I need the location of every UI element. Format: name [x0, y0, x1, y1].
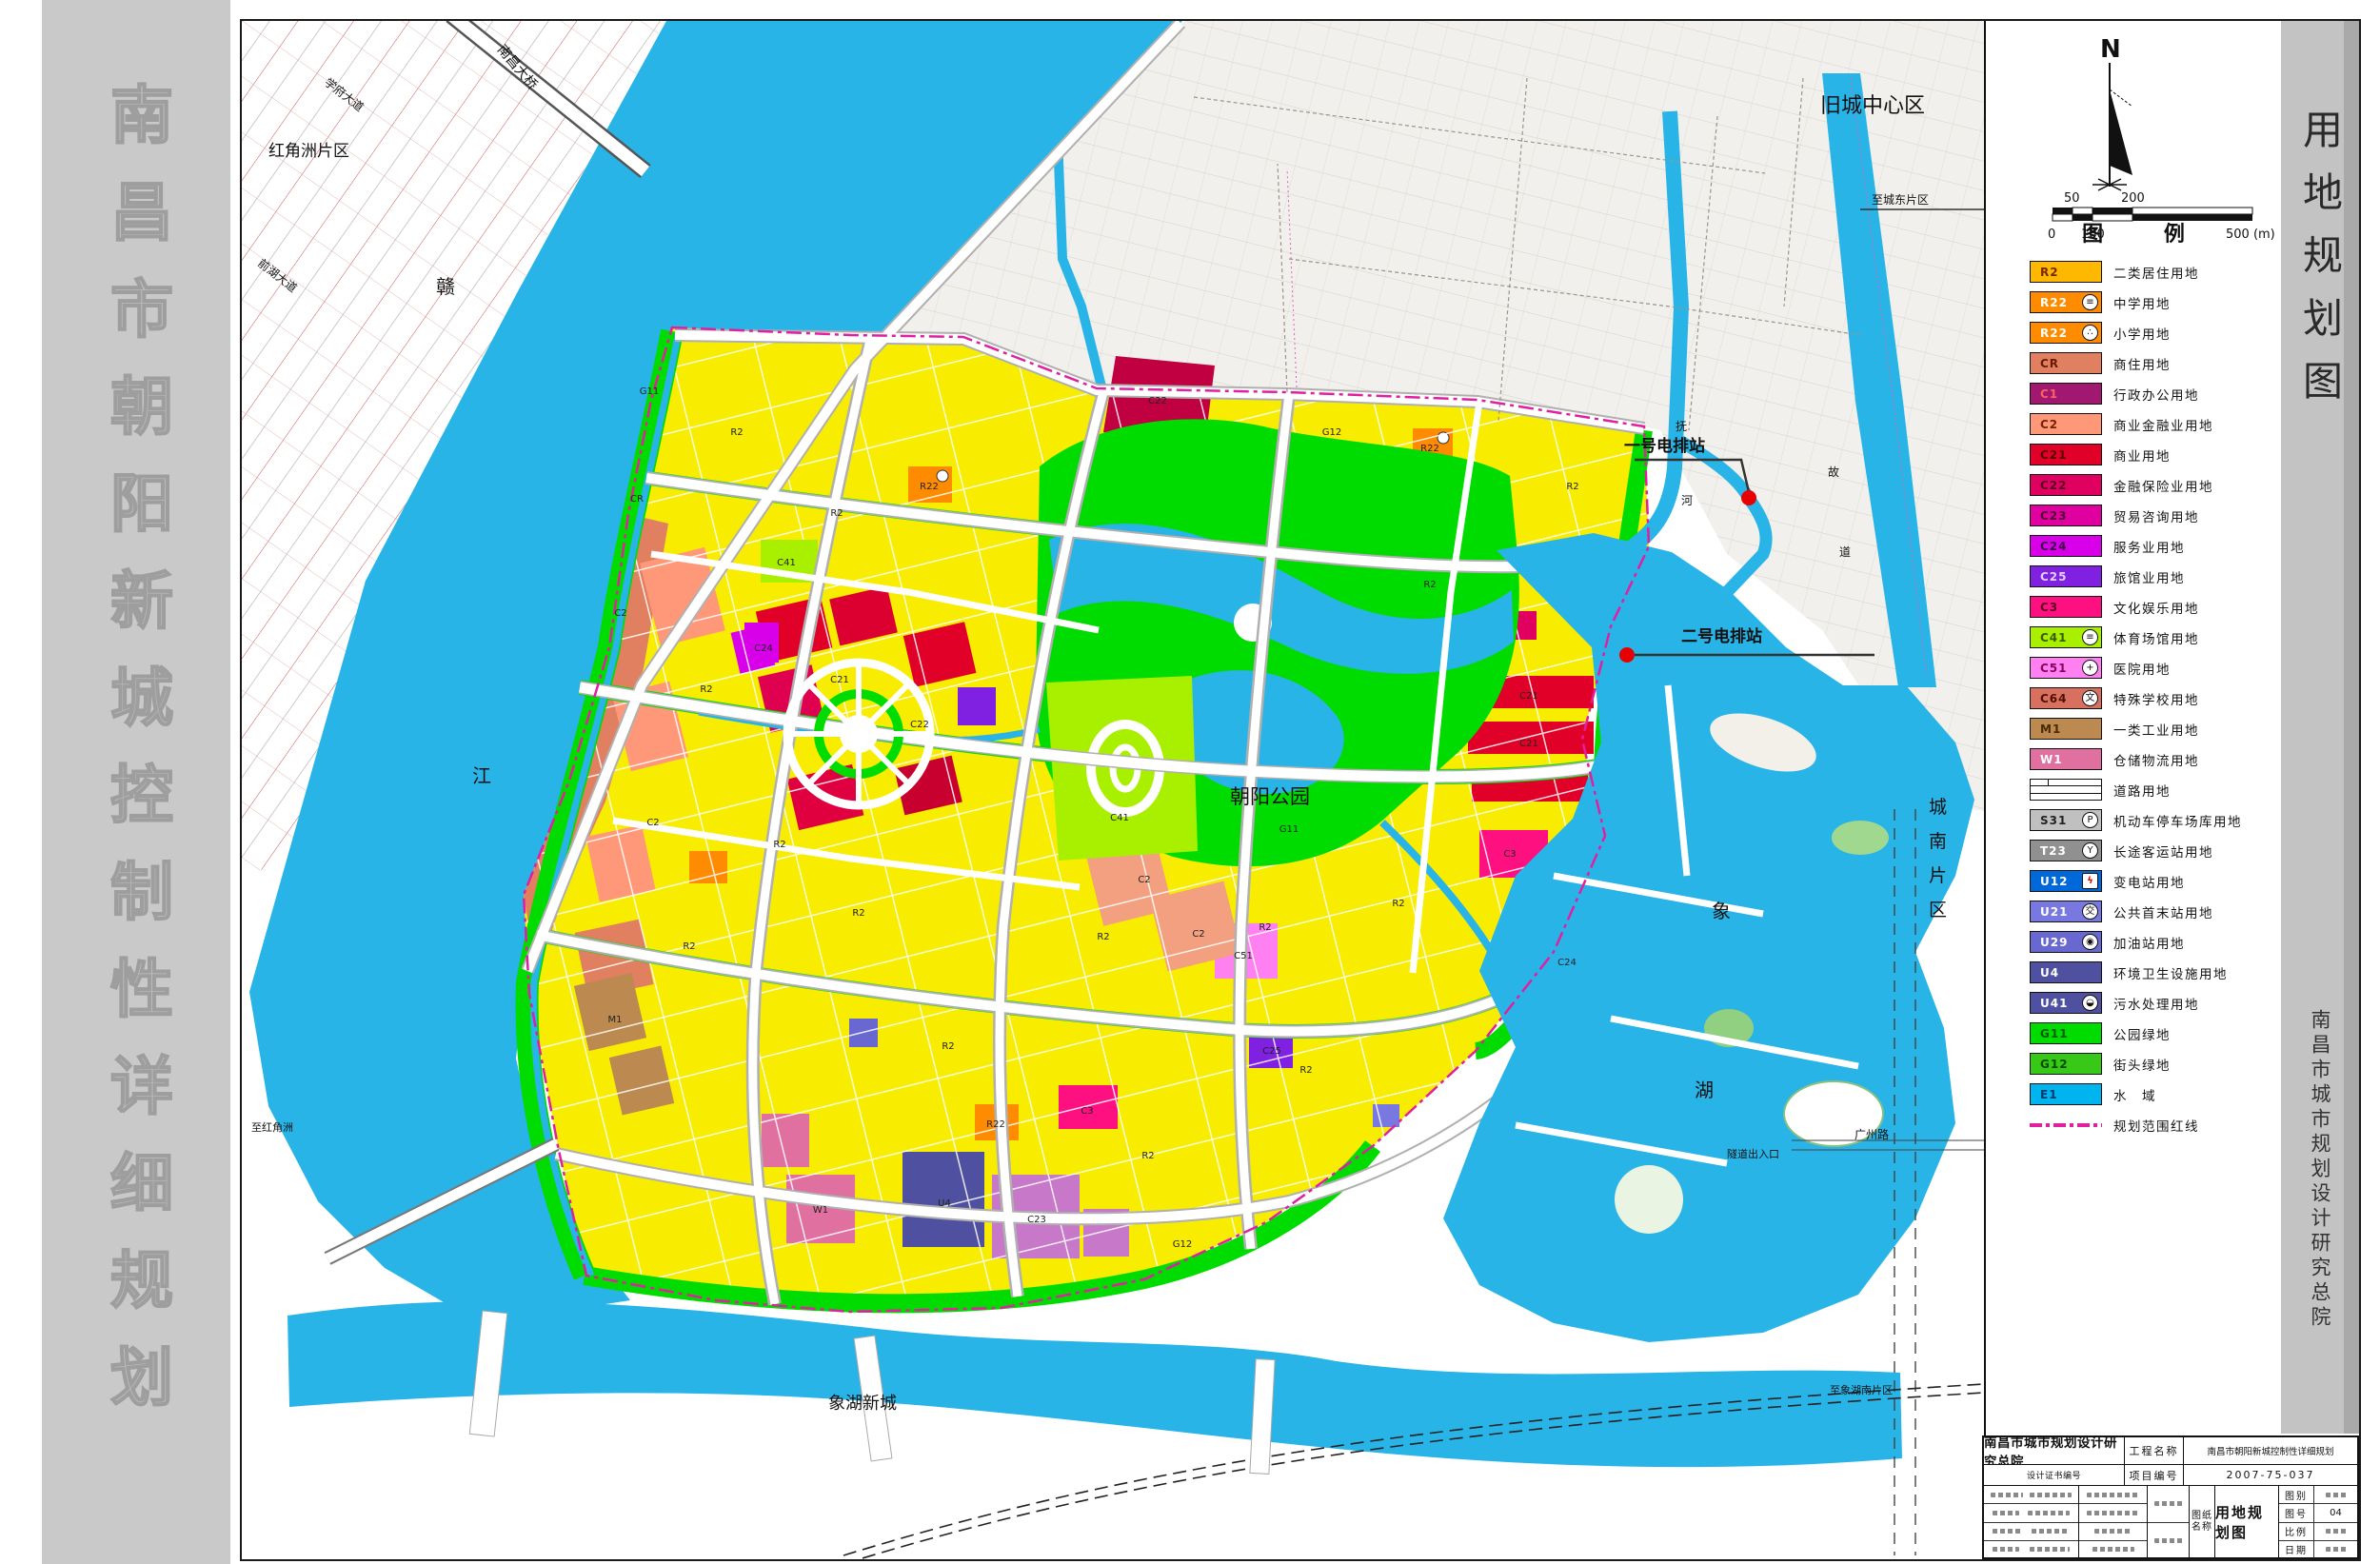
legend-swatch: G11 — [2030, 1022, 2102, 1044]
parking-icon: P — [2082, 812, 2098, 828]
legend-code: R22 — [2040, 296, 2068, 309]
label-old-city: 旧城中心区 — [1820, 94, 1925, 118]
project-name-value: 南昌市朝阳新城控制性详细规划 — [2184, 1437, 2357, 1464]
legend-swatch: U4 — [2030, 961, 2102, 983]
legend-row-C21: C21商业用地 — [2030, 444, 2273, 465]
label-gan-river-1: 赣 — [436, 275, 455, 298]
sheet-name-label: 图纸名称 — [2190, 1486, 2215, 1558]
zone-code-label: C22 — [1148, 396, 1167, 406]
legend-label: 服务业用地 — [2113, 537, 2185, 556]
legend-code: C1 — [2040, 387, 2058, 401]
legend-code: C64 — [2040, 692, 2068, 705]
legend-swatch: C2 — [2030, 413, 2102, 435]
legend-code: C23 — [2040, 509, 2068, 523]
legend-label: 公共首末站用地 — [2113, 902, 2213, 921]
zone-code-label: C2 — [1192, 929, 1204, 940]
label-fuhe-2: 河 — [1681, 494, 1693, 507]
legend-swatch: C51+ — [2030, 657, 2102, 679]
legend-code: C2 — [2040, 418, 2058, 431]
label-tunnel-entrance: 隧道出入口 — [1727, 1147, 1779, 1160]
legend-row-E1: E1水 域 — [2030, 1083, 2273, 1105]
legend-swatch: E1 — [2030, 1083, 2102, 1105]
legend-code: U4 — [2040, 966, 2059, 980]
zone-code-label: CR — [630, 494, 644, 505]
svg-text:50: 50 — [2064, 191, 2080, 206]
left-title-strip: 南昌市朝阳新城控制性详细规划 — [42, 0, 230, 1564]
sewage-treatment-icon: ◒ — [2082, 995, 2098, 1011]
legend-row-C24: C24服务业用地 — [2030, 535, 2273, 557]
zone-code-label: C3 — [1503, 849, 1516, 860]
label-xianghu-xincheng: 象湖新城 — [828, 1394, 897, 1414]
legend-label: 仓储物流用地 — [2113, 750, 2199, 769]
legend-row-C25: C25旅馆业用地 — [2030, 565, 2273, 587]
legend-row-C1: C1行政办公用地 — [2030, 383, 2273, 405]
sheet-name-value: 用地规划图 — [2215, 1486, 2279, 1558]
zone-code-label: C3 — [1081, 1106, 1093, 1117]
zone-code-label: R2 — [1097, 932, 1109, 942]
label-to-chengdong: 至城东片区 — [1872, 193, 1929, 207]
legend-swatch: U21交 — [2030, 901, 2102, 922]
legend-swatch: G12 — [2030, 1053, 2102, 1075]
legend-label: 环境卫生设施用地 — [2113, 963, 2228, 982]
legend-row-R22: R22∴小学用地 — [2030, 322, 2273, 344]
legend-code: C41 — [2040, 631, 2068, 644]
legend-row-U4: U4环境卫生设施用地 — [2030, 961, 2273, 983]
project-name-label: 工程名称 — [2125, 1437, 2184, 1464]
legend-label: 水 域 — [2113, 1085, 2156, 1104]
legend-label: 贸易咨询用地 — [2113, 506, 2199, 525]
legend-label: 文化娱乐用地 — [2113, 598, 2199, 617]
project-no-value: 2007-75-037 — [2184, 1465, 2357, 1485]
legend-code: CR — [2040, 357, 2059, 370]
legend-swatch: S31P — [2030, 809, 2102, 831]
zone-code-label: R22 — [920, 482, 939, 492]
zone-code-label: G11 — [640, 386, 659, 397]
legend-swatch: R22≡ — [2030, 291, 2102, 313]
legend-swatch — [2030, 779, 2102, 801]
zone-code-label: M1 — [608, 1015, 623, 1025]
hospital-cross-icon: + — [2082, 660, 2098, 676]
zone-code-label: W1 — [813, 1205, 828, 1216]
legend-swatch: C24 — [2030, 535, 2102, 557]
zone-code-label: C21 — [1519, 691, 1538, 702]
legend-row-U29: U29◉加油站用地 — [2030, 931, 2273, 953]
cert-label: 设计证书编号 — [1984, 1465, 2125, 1485]
zone-code-label: C21 — [1519, 739, 1538, 749]
legend-code: S31 — [2040, 814, 2067, 827]
compass-and-scale: N 50 200 0 100 500 (m) — [1986, 27, 2283, 247]
legend-swatch: M1 — [2030, 718, 2102, 740]
zone-code-label: R22 — [1420, 444, 1439, 454]
legend-code: U12 — [2040, 875, 2068, 888]
zone-code-label: C41 — [777, 558, 796, 568]
bus-terminal-icon: Y — [2082, 842, 2098, 859]
legend-label: 规划范围红线 — [2113, 1116, 2199, 1135]
legend-label: 加油站用地 — [2113, 933, 2185, 952]
legend-label: 公园绿地 — [2113, 1024, 2171, 1043]
gas-station-icon: ◉ — [2082, 934, 2098, 950]
project-no-label: 项目编号 — [2125, 1465, 2184, 1485]
legend-code: G11 — [2040, 1027, 2069, 1040]
legend-swatch: C64文 — [2030, 687, 2102, 709]
legend-code: C3 — [2040, 601, 2058, 614]
legend-label: 金融保险业用地 — [2113, 476, 2213, 495]
legend-code: G12 — [2040, 1058, 2069, 1071]
legend-swatch: C1 — [2030, 383, 2102, 405]
zone-code-label: C25 — [1262, 1046, 1281, 1057]
legend-code: U29 — [2040, 936, 2068, 949]
label-gudao-1: 故 — [1828, 465, 1839, 479]
zone-code-label: C2 — [1138, 875, 1150, 885]
label-to-xianghunan: 至象湖南片区 — [1830, 1384, 1893, 1396]
legend-swatch: CR — [2030, 352, 2102, 374]
zone-code-label: C24 — [754, 643, 773, 654]
legend-row-C23: C23贸易咨询用地 — [2030, 505, 2273, 526]
titleblock-institute: 南昌市城市规划设计研究总院 — [1984, 1437, 2125, 1464]
label-gudao-2: 道 — [1839, 545, 1851, 559]
legend-code: C24 — [2040, 540, 2068, 553]
legend-code: C25 — [2040, 570, 2068, 584]
legend-row-C51: C51+医院用地 — [2030, 657, 2273, 679]
legend-row-G12: G12街头绿地 — [2030, 1053, 2273, 1075]
legend-label: 特殊学校用地 — [2113, 689, 2199, 708]
legend-row-U21: U21交公共首末站用地 — [2030, 901, 2273, 922]
zone-code-label: R2 — [730, 427, 743, 438]
legend-label: 行政办公用地 — [2113, 385, 2199, 404]
legend-row-W1: W1仓储物流用地 — [2030, 748, 2273, 770]
label-xianghu-2: 湖 — [1695, 1079, 1714, 1101]
civic-plaza — [787, 663, 930, 805]
legend-row-C2: C2商业金融业用地 — [2030, 413, 2273, 435]
zone-code-label: C2 — [646, 818, 659, 828]
legend-row-G11: G11公园绿地 — [2030, 1022, 2273, 1044]
legend-label: 中学用地 — [2113, 293, 2171, 312]
zone-code-label: R2 — [773, 840, 785, 850]
legend-row-CR: CR商住用地 — [2030, 352, 2273, 374]
legend-code: R22 — [2040, 327, 2068, 340]
legend-row-road: 道路用地 — [2030, 779, 2273, 801]
zone-code-label: G12 — [1322, 427, 1341, 438]
document-title-vertical: 南昌市朝阳新城控制性详细规划 — [90, 82, 182, 1441]
legend-label: 街头绿地 — [2113, 1055, 2171, 1074]
legend-label: 长途客运站用地 — [2113, 841, 2213, 861]
legend-row-C22: C22金融保险业用地 — [2030, 474, 2273, 496]
zone-code-label: R2 — [830, 508, 843, 519]
legend-code: U41 — [2040, 997, 2068, 1010]
legend-label: 小学用地 — [2113, 324, 2171, 343]
legend-swatch: W1 — [2030, 748, 2102, 770]
legend-row-R22: R22≡中学用地 — [2030, 291, 2273, 313]
zone-code-label: R22 — [986, 1119, 1005, 1130]
label-guangzhou-road: 广州路 — [1854, 1127, 1889, 1141]
legend-label: 商业金融业用地 — [2113, 415, 2213, 434]
legend-label: 商住用地 — [2113, 354, 2171, 373]
svg-text:200: 200 — [2121, 191, 2145, 206]
zone-code-label: R2 — [1423, 580, 1436, 590]
legend-rows: R2二类居住用地R22≡中学用地R22∴小学用地CR商住用地C1行政办公用地C2… — [2030, 261, 2273, 1144]
zone-code-label: G11 — [1279, 824, 1299, 835]
sheet-meta-table: 图别 图号04 比例 日期 — [2279, 1486, 2357, 1558]
label-chaoyang-park: 朝阳公园 — [1230, 785, 1310, 808]
zone-code-label: G12 — [1173, 1239, 1192, 1250]
map-svg: 红角洲片区学府大道前湖大道南昌大桥赣江旧城中心区至城东片区一号电排站二号电排站朝… — [242, 21, 1984, 1559]
zone-code-label: R2 — [683, 941, 695, 952]
zone-code-label: C21 — [830, 675, 849, 685]
legend-label: 道路用地 — [2113, 781, 2171, 800]
legend-label: 旅馆业用地 — [2113, 567, 2185, 586]
legend-row-T23: T23Y长途客运站用地 — [2030, 840, 2273, 861]
legend-row-C41: C41≡体育场馆用地 — [2030, 626, 2273, 648]
legend-label: 二类居住用地 — [2113, 263, 2199, 282]
middle-school-icon: ≡ — [2082, 294, 2098, 310]
zone-code-label: R2 — [1392, 899, 1404, 909]
legend-code: M1 — [2040, 723, 2061, 736]
zone-code-label: C22 — [910, 720, 929, 730]
zone-code-label: R2 — [852, 908, 864, 919]
legend-swatch: C41≡ — [2030, 626, 2102, 648]
signoff-column-1 — [1984, 1486, 2079, 1558]
label-gan-river-2: 江 — [472, 764, 491, 787]
legend-code: C22 — [2040, 479, 2068, 492]
legend-swatch — [2030, 1114, 2102, 1136]
stadium-icon: ≡ — [2082, 629, 2098, 645]
zone-code-label: C24 — [1557, 958, 1577, 968]
label-pump-station-1: 一号电排站 — [1624, 436, 1705, 456]
legend-swatch: C23 — [2030, 505, 2102, 526]
label-pump-station-2: 二号电排站 — [1681, 626, 1762, 646]
label-fuhe-1: 抚 — [1676, 420, 1687, 433]
legend-row-U12: U12ϟ变电站用地 — [2030, 870, 2273, 892]
legend-title: 图 例 — [1986, 217, 2281, 247]
legend-row-C64: C64文特殊学校用地 — [2030, 687, 2273, 709]
institute-vertical: 南昌市城市规划设计研究总院 — [2306, 1009, 2334, 1331]
zone-code-label: R2 — [1259, 922, 1271, 933]
signoff-column-3 — [2148, 1486, 2190, 1558]
legend-swatch: R22∴ — [2030, 322, 2102, 344]
legend-panel: N 50 200 0 100 500 (m) 图 例 R2二类居住用地R22≡中… — [1984, 21, 2281, 1559]
legend-code: W1 — [2040, 753, 2063, 766]
north-arrow-icon — [2092, 63, 2132, 190]
legend-row-C3: C3文化娱乐用地 — [2030, 596, 2273, 618]
zone-code-label: R2 — [1299, 1065, 1312, 1076]
legend-row-M1: M1一类工业用地 — [2030, 718, 2273, 740]
zone-code-label: C23 — [1027, 1215, 1046, 1225]
legend-row-S31: S31P机动车停车场库用地 — [2030, 809, 2273, 831]
zone-code-label: C2 — [614, 608, 626, 619]
label-to-hongjiaozhou: 至红角洲 — [251, 1121, 293, 1134]
sheet-title-vertical: 用地规划图 — [2291, 109, 2350, 423]
legend-label: 机动车停车场库用地 — [2113, 811, 2242, 830]
legend-swatch: C25 — [2030, 565, 2102, 587]
legend-swatch: T23Y — [2030, 840, 2102, 861]
legend-row-R2: R2二类居住用地 — [2030, 261, 2273, 283]
zone-code-label: R2 — [700, 684, 712, 695]
primary-school-icon: ∴ — [2082, 325, 2098, 341]
legend-swatch: R2 — [2030, 261, 2102, 283]
zone-code-label: C41 — [1110, 813, 1129, 823]
substation-lightning-icon: ϟ — [2082, 873, 2098, 889]
plan-sheet: 红角洲片区学府大道前湖大道南昌大桥赣江旧城中心区至城东片区一号电排站二号电排站朝… — [240, 19, 2361, 1561]
label-hongjiaozhou: 红角洲片区 — [268, 142, 349, 161]
legend-swatch: U29◉ — [2030, 931, 2102, 953]
legend-label: 体育场馆用地 — [2113, 628, 2199, 647]
legend-label: 医院用地 — [2113, 659, 2171, 678]
north-label: N — [2100, 35, 2121, 64]
label-xianghu-1: 象 — [1712, 900, 1731, 922]
legend-swatch: U41◒ — [2030, 992, 2102, 1014]
legend-row-U41: U41◒污水处理用地 — [2030, 992, 2273, 1014]
zone-code-label: U4 — [938, 1198, 951, 1209]
legend-code: T23 — [2040, 844, 2067, 858]
legend-label: 污水处理用地 — [2113, 994, 2199, 1013]
legend-swatch: C3 — [2030, 596, 2102, 618]
map-area: 红角洲片区学府大道前湖大道南昌大桥赣江旧城中心区至城东片区一号电排站二号电排站朝… — [242, 21, 1984, 1559]
legend-code: R2 — [2040, 266, 2059, 279]
legend-code: U21 — [2040, 905, 2068, 919]
right-title-strip: 用地规划图 南昌市城市规划设计研究总院 — [2281, 21, 2359, 1434]
legend-row-boundary: 规划范围红线 — [2030, 1114, 2273, 1136]
legend-swatch: C22 — [2030, 474, 2102, 496]
zone-code-label: R2 — [1141, 1151, 1154, 1161]
legend-label: 商业用地 — [2113, 445, 2171, 465]
transit-terminus-icon: 交 — [2082, 903, 2098, 920]
legend-code: C21 — [2040, 448, 2068, 462]
title-block: 南昌市城市规划设计研究总院 工程名称 南昌市朝阳新城控制性详细规划 设计证书编号… — [1982, 1435, 2359, 1559]
legend-code: E1 — [2040, 1088, 2058, 1101]
zone-code-label: R2 — [942, 1041, 954, 1052]
legend-label: 一类工业用地 — [2113, 720, 2199, 739]
legend-swatch: C21 — [2030, 444, 2102, 465]
special-school-icon: 文 — [2082, 690, 2098, 706]
signoff-column-2 — [2079, 1486, 2148, 1558]
legend-swatch: U12ϟ — [2030, 870, 2102, 892]
legend-code: C51 — [2040, 662, 2068, 675]
zone-code-label: C51 — [1234, 951, 1253, 961]
zone-code-label: R2 — [1566, 482, 1578, 492]
legend-label: 变电站用地 — [2113, 872, 2185, 891]
